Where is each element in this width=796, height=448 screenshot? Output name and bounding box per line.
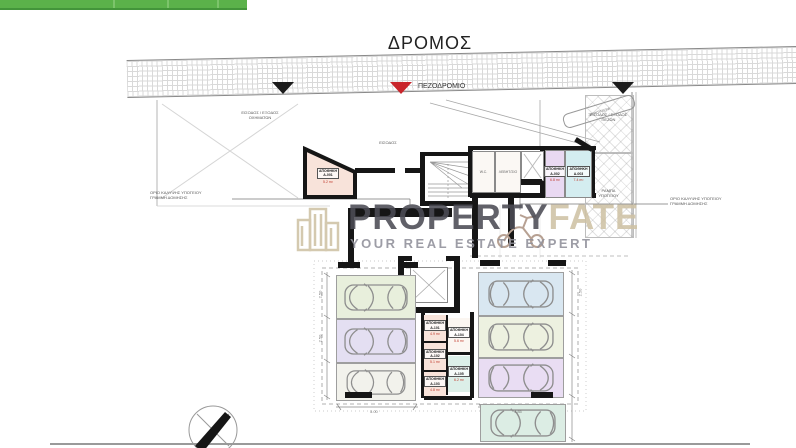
room-a102-label: ΑΠΟΘΗΚΗ A-102 (424, 349, 446, 360)
room-a103-area: 4.8 m² (430, 388, 440, 392)
parking-stall-2 (336, 319, 416, 363)
north-arrow-icon (182, 402, 244, 448)
room-a102: ΑΠΟΘΗΚΗ A-102 5.1 m² (424, 343, 446, 370)
dimension-text: 4.85 (514, 409, 522, 414)
room-a002-label: ΑΠΟΘΗΚΗ A-002 (544, 166, 566, 177)
room-mech: ΛΕΒΗΤ/ΣΙΟ (495, 151, 521, 193)
room-a105-area: 6.2 m² (454, 378, 464, 382)
wall (521, 179, 542, 185)
planter-label: ΖΑΡΝΤΙΝΙΕΡΑ (588, 106, 611, 116)
wall (424, 396, 472, 400)
room-a104: ΑΠΟΘΗΚΗ A-104 5.6 m² (448, 318, 470, 352)
wall-stub (548, 260, 566, 266)
dimension-text: 2.50 (577, 289, 582, 297)
wall-stub (403, 262, 418, 268)
room-a002-area: 6.8 m² (550, 178, 560, 182)
right-boundary-note: ΟΡΙΟ ΚΑΛΥΨΗΣ ΥΠΟΓΕΙΟΥ ΓΡΑΜΜΗ ΔΟΜΗΣΗΣ (670, 196, 760, 207)
room-a003: ΑΠΟΘΗΚΗ A-003 7.4 m² (565, 150, 592, 198)
room-a101-label: ΑΠΟΘΗΚΗ A-101 (424, 320, 446, 331)
wall (355, 168, 395, 173)
watermark-brand-secondary: FATE (549, 198, 640, 237)
left-boundary-note: ΟΡΙΟ ΚΑΛΥΨΗΣ ΥΠΟΓΕΙΟΥ ΓΡΑΜΜΗ ΔΟΜΗΣΗΣ (150, 190, 235, 201)
room-shaft (521, 151, 544, 181)
wall (424, 309, 436, 313)
room-wc: W.C. (472, 151, 495, 193)
car-drawing (487, 363, 555, 393)
car-drawing (343, 283, 409, 312)
entrance-label: ΕΙΣΟΔΟΣ (370, 140, 406, 145)
room-a105-label: ΑΠΟΘΗΚΗ A-105 (448, 366, 470, 377)
car-drawing (343, 327, 409, 356)
wall (448, 352, 472, 355)
room-a104-area: 5.6 m² (454, 339, 464, 343)
vehicle-access-note: ΕΙΣΟΔΟΣ / ΕΞΟΔΟΣ ΟΧΗΜΑΤΩΝ (225, 110, 295, 121)
room-a101-area: 4.9 m² (430, 332, 440, 336)
parking-stall-7 (480, 404, 566, 442)
room-a002: ΑΠΟΘΗΚΗ A-002 6.8 m² (545, 150, 565, 198)
wall (470, 312, 474, 398)
room-a001-area: 5.2 m² (323, 180, 333, 184)
floor-plan-canvas: ΔΡΟΜΟΣ ΠΕΖΟΔΡΟΜΙΟ ΕΙΣΟΔΟΣ / ΕΞΟΔΟΣ ΟΧ (0, 0, 796, 448)
dimension-text: 2.50 (317, 291, 322, 299)
wall-stub (345, 392, 372, 398)
room-a101: ΑΠΟΘΗΚΗ A-101 4.9 m² (424, 315, 446, 341)
wall-stub (531, 392, 553, 398)
parking-stall-4 (478, 272, 564, 316)
room-a003-area: 7.4 m² (574, 178, 584, 182)
watermark-tagline: YOUR REAL ESTATE EXPERT (350, 236, 592, 251)
room-a001: ΑΠΟΘΗΚΗ A-001 5.2 m² (306, 168, 350, 184)
room-mech-label: ΛΕΒΗΤ/ΣΙΟ (499, 170, 518, 174)
car-drawing (487, 279, 555, 309)
room-a103: ΑΠΟΘΗΚΗ A-103 4.8 m² (424, 372, 446, 396)
dimension-text: 2.50 (317, 335, 322, 343)
room-a103-label: ΑΠΟΘΗΚΗ A-103 (424, 376, 446, 387)
room-wc-label: W.C. (480, 170, 488, 174)
room-a001-label: ΑΠΟΘΗΚΗ A-001 (317, 168, 339, 179)
car-drawing (487, 322, 555, 352)
room-a102-area: 5.1 m² (430, 360, 440, 364)
watermark-logo-icon (295, 200, 341, 252)
watermark-brand-primary: PROPERTY (348, 198, 549, 237)
room-a003-label: ΑΠΟΘΗΚΗ A-003 (567, 166, 589, 177)
wall-stub (338, 262, 360, 268)
staircase (426, 158, 470, 200)
room-a104-label: ΑΠΟΘΗΚΗ A-104 (448, 327, 470, 338)
wall-stub (480, 260, 500, 266)
parking-stall-1 (336, 275, 416, 319)
car-drawing (489, 408, 557, 438)
wall (420, 152, 472, 156)
room-a105: ΑΠΟΘΗΚΗ A-105 6.2 m² (448, 356, 470, 392)
wall (454, 256, 460, 312)
dimension-text: 5.00 (370, 409, 378, 414)
parking-stall-5 (478, 316, 564, 358)
